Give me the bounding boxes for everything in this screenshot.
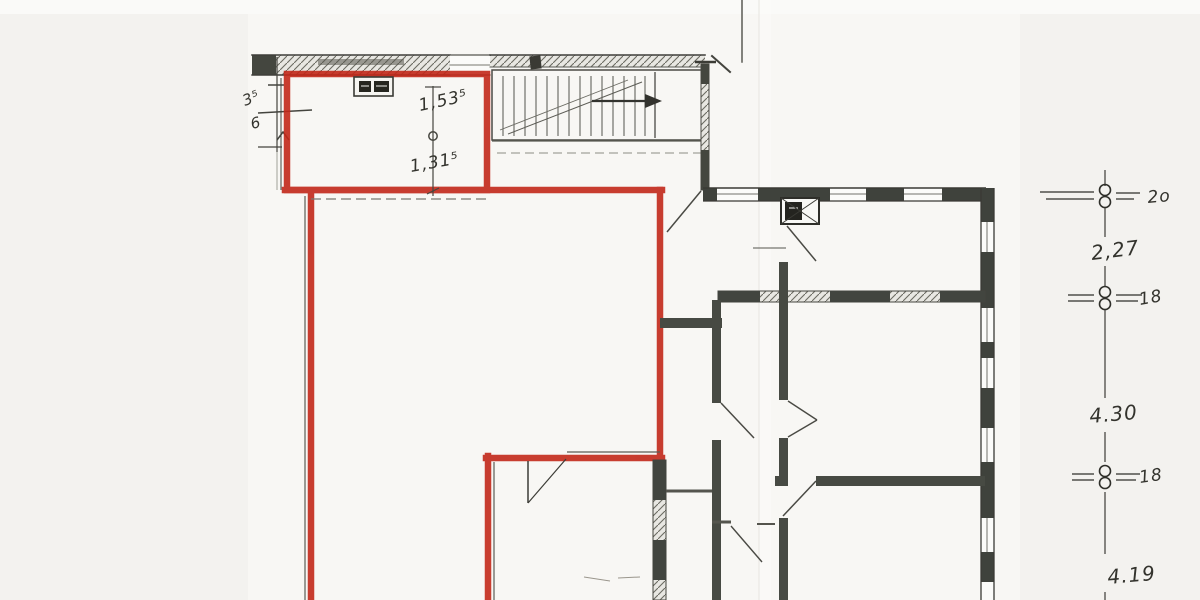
dim-label-419: 4.19 xyxy=(1106,561,1156,589)
interior-wall-below-red xyxy=(653,460,666,600)
dim-label-18-upper: 18 xyxy=(1137,286,1164,310)
dim-label-227: 2,27 xyxy=(1090,235,1141,265)
interior-wall-s1 xyxy=(660,318,722,328)
dimension-chain xyxy=(1040,170,1142,600)
dim-tick-symbol xyxy=(1040,185,1140,208)
right-section-top-wall xyxy=(703,188,986,201)
dim-tick-symbol xyxy=(1068,287,1142,310)
scanned-floor-plan-page: 3⁵ 6 xyxy=(0,0,1200,600)
shaft-box xyxy=(781,198,819,224)
right-exterior-wall xyxy=(981,188,994,600)
dim-tick-symbol xyxy=(1072,466,1140,489)
interior-wall-w1 xyxy=(712,300,721,600)
paper-background xyxy=(0,0,1200,600)
column-mark xyxy=(529,55,541,69)
wall-dark-segment xyxy=(252,55,276,75)
window-segment xyxy=(981,582,994,600)
dim-label-430: 4.30 xyxy=(1088,400,1138,428)
wall-hatched-band xyxy=(490,55,705,67)
interior-wall-h1 xyxy=(718,291,985,302)
paper-top-strip xyxy=(0,0,1200,14)
floor-plan-canvas: 3⁵ 6 xyxy=(0,0,1200,600)
dim-label-20: 2o xyxy=(1147,186,1172,208)
stamp-box xyxy=(354,77,393,96)
wall-smudge xyxy=(318,59,404,65)
dim-label-18-lower: 18 xyxy=(1138,465,1164,488)
